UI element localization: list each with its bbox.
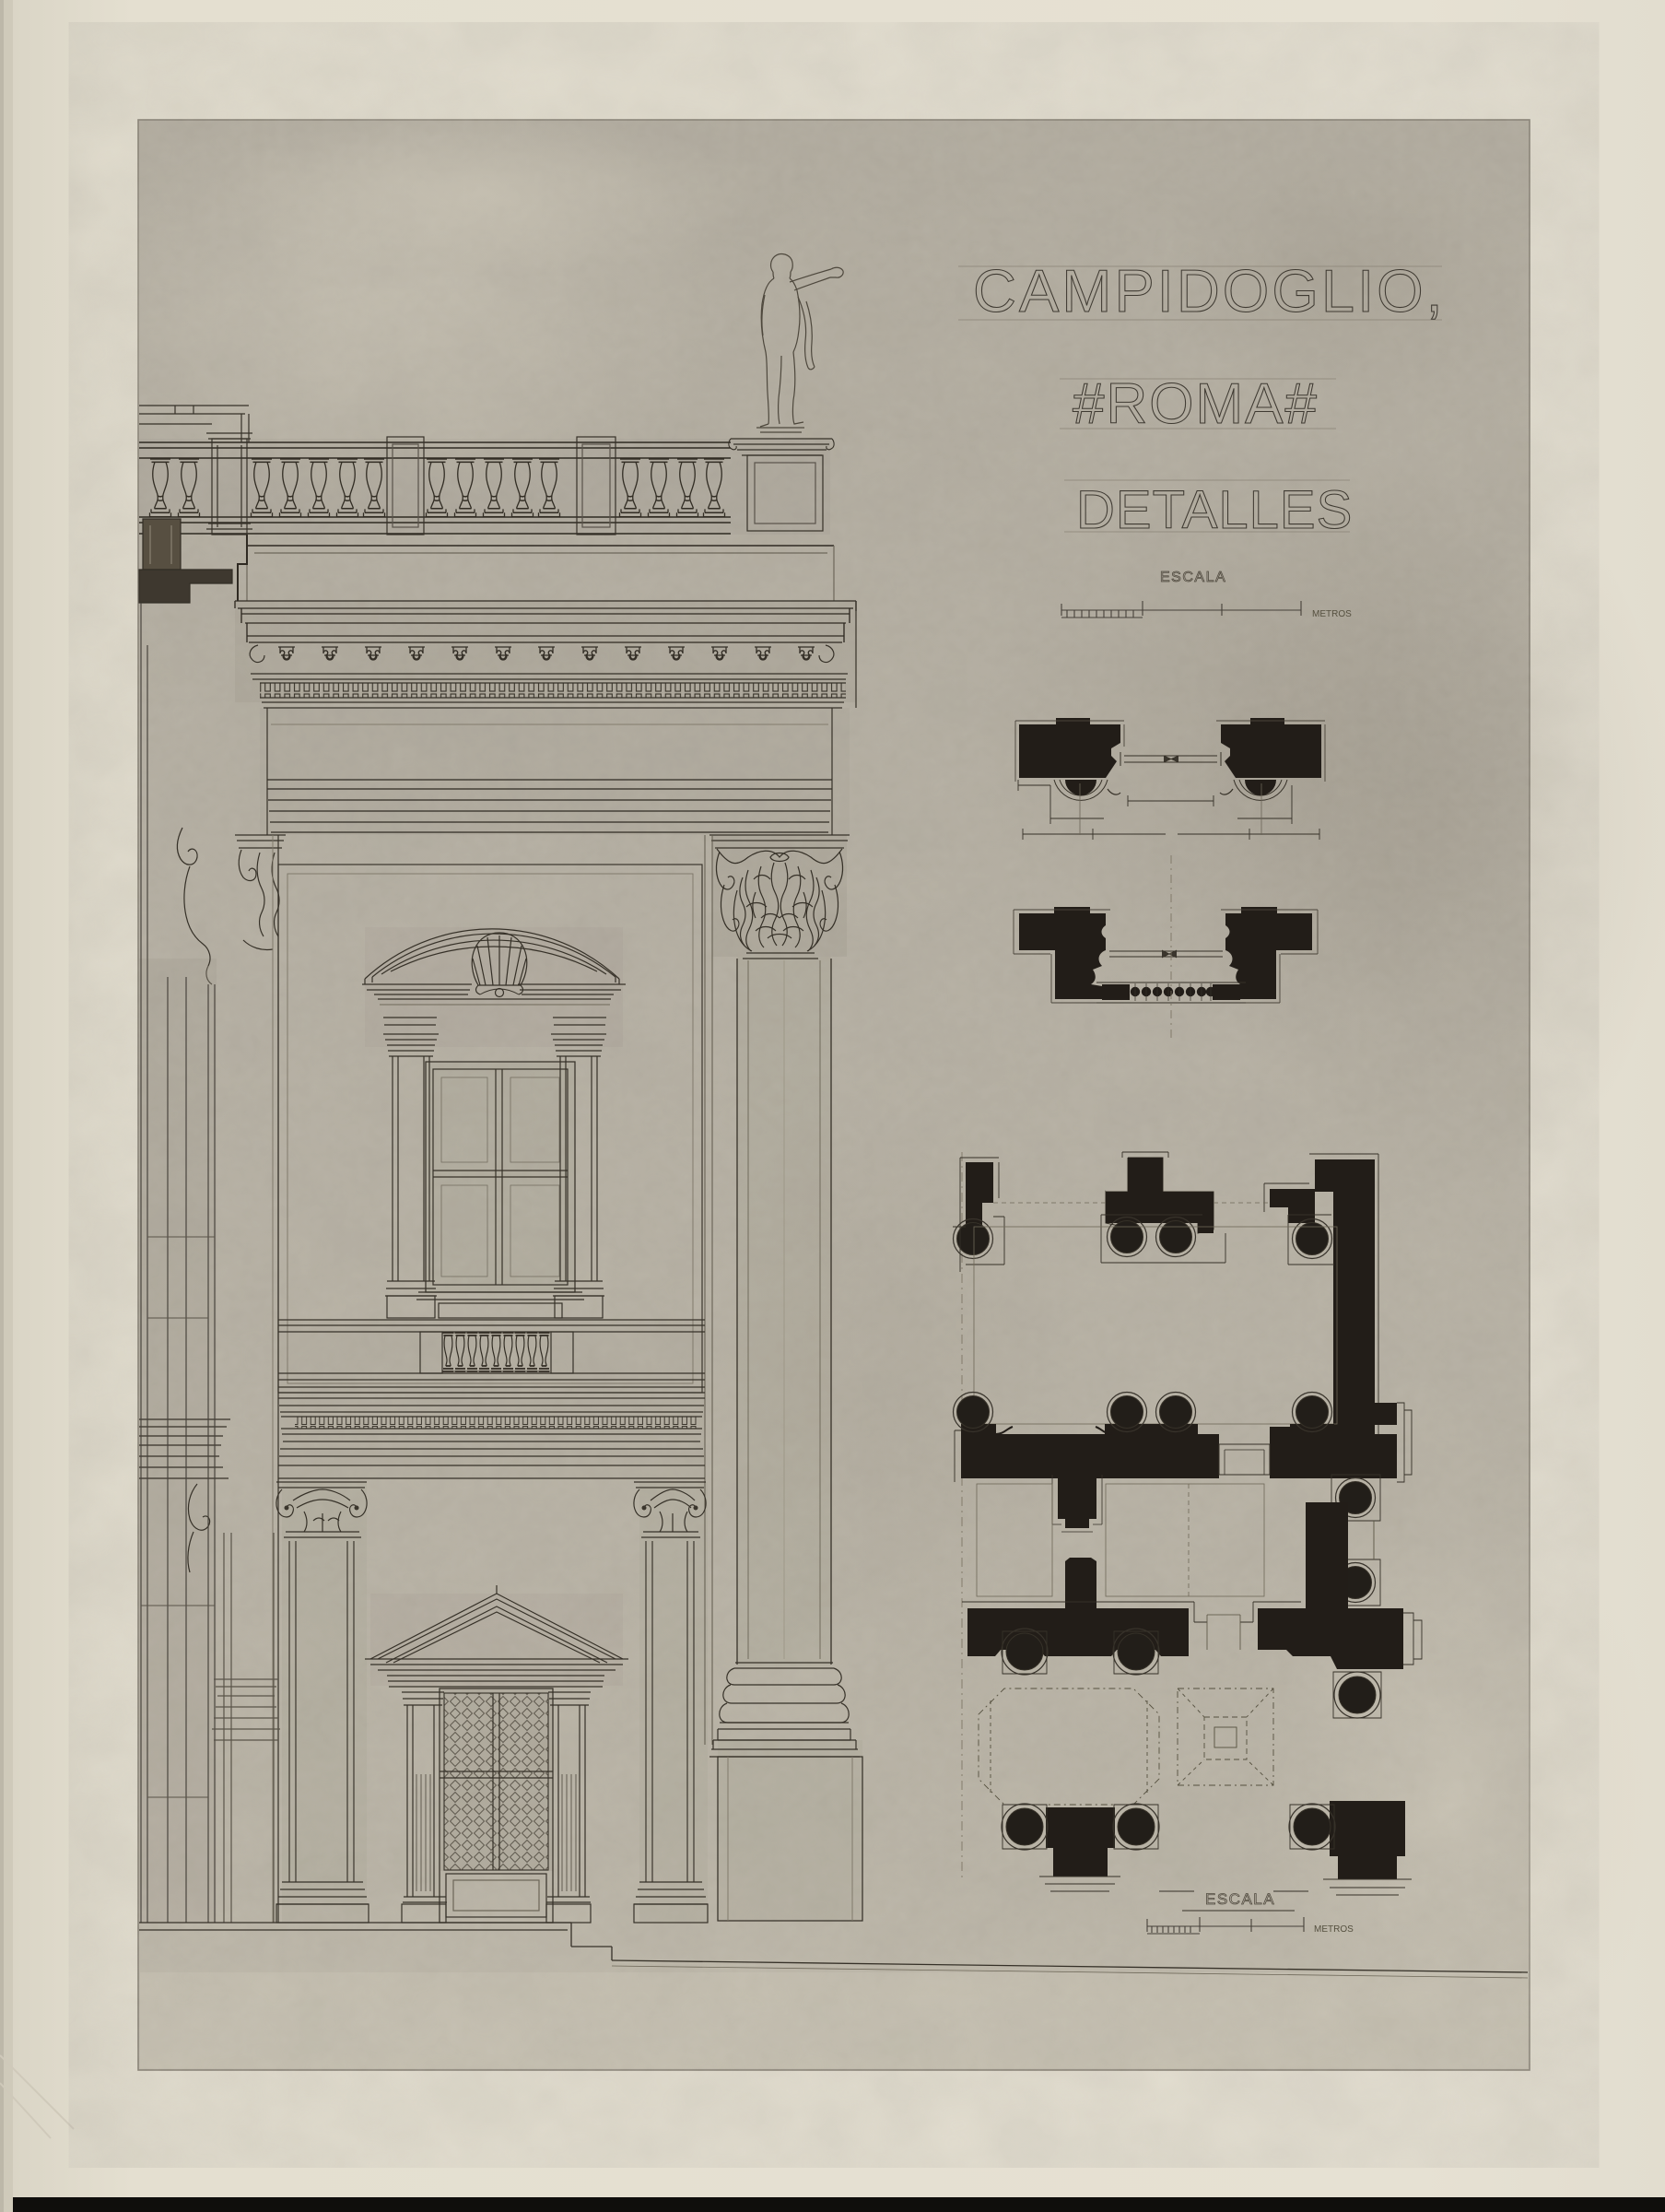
svg-text:DETALLES: DETALLES xyxy=(1076,480,1353,540)
svg-text:ESCALA: ESCALA xyxy=(1160,570,1226,585)
svg-text:METROS: METROS xyxy=(1312,609,1352,619)
svg-text:ESCALA: ESCALA xyxy=(1205,1890,1275,1908)
svg-text:CAMPIDOGLIO,: CAMPIDOGLIO, xyxy=(973,257,1446,324)
svg-text:#ROMA#: #ROMA# xyxy=(1073,372,1319,436)
svg-text:METROS: METROS xyxy=(1314,1924,1354,1935)
